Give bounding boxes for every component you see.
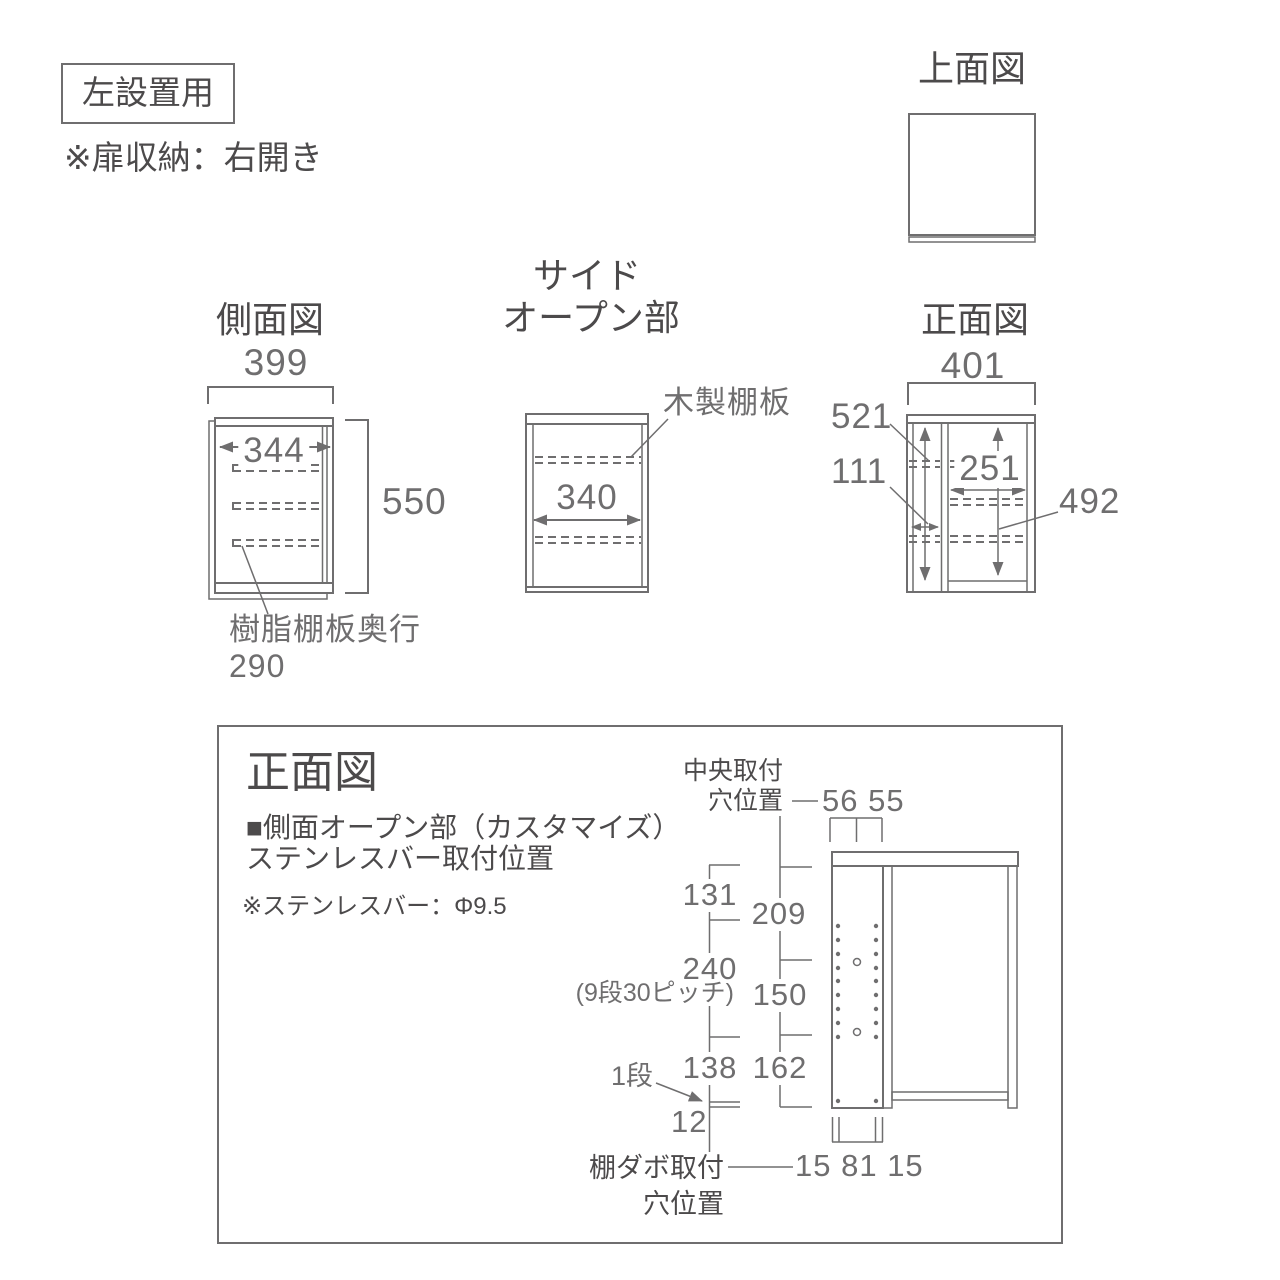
seg-150: 150 bbox=[748, 979, 813, 1012]
seg-162: 162 bbox=[748, 1052, 813, 1085]
dim-550-bracket bbox=[345, 420, 368, 593]
furniture-dimension-sheet: 左設置用 ※扉収納：右開き 上面図 側面図 399 344 550 樹脂棚板奥行… bbox=[0, 0, 1280, 1280]
center-hole-label-line1: 中央取付 bbox=[683, 758, 783, 784]
seg-138: 138 bbox=[678, 1052, 743, 1085]
dim-111: 111 bbox=[831, 454, 887, 491]
door-note: ※扉収納：右開き bbox=[64, 141, 323, 176]
top-view-title: 上面図 bbox=[918, 50, 1026, 88]
dim-111-leader bbox=[890, 487, 928, 524]
step-label: 1段 bbox=[611, 1062, 653, 1090]
dowel-hole-label-line1: 棚ダボ取付 bbox=[589, 1154, 724, 1182]
dim-399: 399 bbox=[244, 344, 309, 383]
shelf-pin-holes bbox=[836, 924, 878, 1103]
dim-550: 550 bbox=[382, 483, 447, 522]
dim-401-bracket bbox=[908, 383, 1035, 405]
dim-251: 251 bbox=[954, 451, 1025, 488]
side-view-drawing bbox=[208, 387, 368, 614]
side-open-title-line1: サイド bbox=[533, 257, 641, 295]
dowel-hole-label-line2: 穴位置 bbox=[643, 1190, 724, 1218]
seg-12: 12 bbox=[671, 1106, 707, 1139]
resin-shelf-label: 樹脂棚板奥行 bbox=[229, 614, 421, 647]
side-open-title-line2: オープン部 bbox=[502, 299, 680, 337]
seg-209: 209 bbox=[747, 898, 812, 931]
dim-290: 290 bbox=[229, 650, 285, 684]
dim-492: 492 bbox=[1059, 484, 1120, 521]
dim-56-55: 56 55 bbox=[822, 785, 905, 818]
step-arrow bbox=[656, 1083, 702, 1101]
dim-521-leader bbox=[890, 424, 929, 461]
center-hole-comb bbox=[830, 818, 882, 842]
badge-left-install: 左設置用 bbox=[61, 63, 235, 124]
detail-subtitle2: ステンレスバー取付位置 bbox=[246, 844, 554, 873]
center-mount-holes bbox=[854, 959, 861, 1036]
front-view-title: 正面図 bbox=[921, 301, 1029, 339]
side-view-title: 側面図 bbox=[216, 301, 324, 339]
dim-521: 521 bbox=[831, 399, 892, 436]
seg-240-note: (9段30ピッチ) bbox=[571, 980, 739, 1006]
seg-131: 131 bbox=[678, 879, 743, 912]
bar-diameter-note: ※ステンレスバー：Φ9.5 bbox=[242, 894, 507, 919]
dim-344: 344 bbox=[238, 433, 309, 470]
wood-shelf-label: 木製棚板 bbox=[663, 387, 791, 420]
detail-subtitle: ■側面オープン部（カスタマイズ） bbox=[246, 813, 680, 842]
dim-15-81-15: 15 81 15 bbox=[795, 1150, 924, 1183]
top-view-drawing bbox=[909, 114, 1035, 242]
dim-340: 340 bbox=[556, 480, 617, 517]
dim-401: 401 bbox=[941, 347, 1006, 386]
badge-label: 左設置用 bbox=[82, 76, 214, 111]
dowel-hole-comb bbox=[832, 1117, 883, 1142]
dim-399-bracket bbox=[208, 387, 333, 404]
detail-title: 正面図 bbox=[246, 750, 378, 796]
dim-492-leader bbox=[999, 512, 1058, 529]
center-hole-label-line2: 穴位置 bbox=[708, 788, 783, 814]
